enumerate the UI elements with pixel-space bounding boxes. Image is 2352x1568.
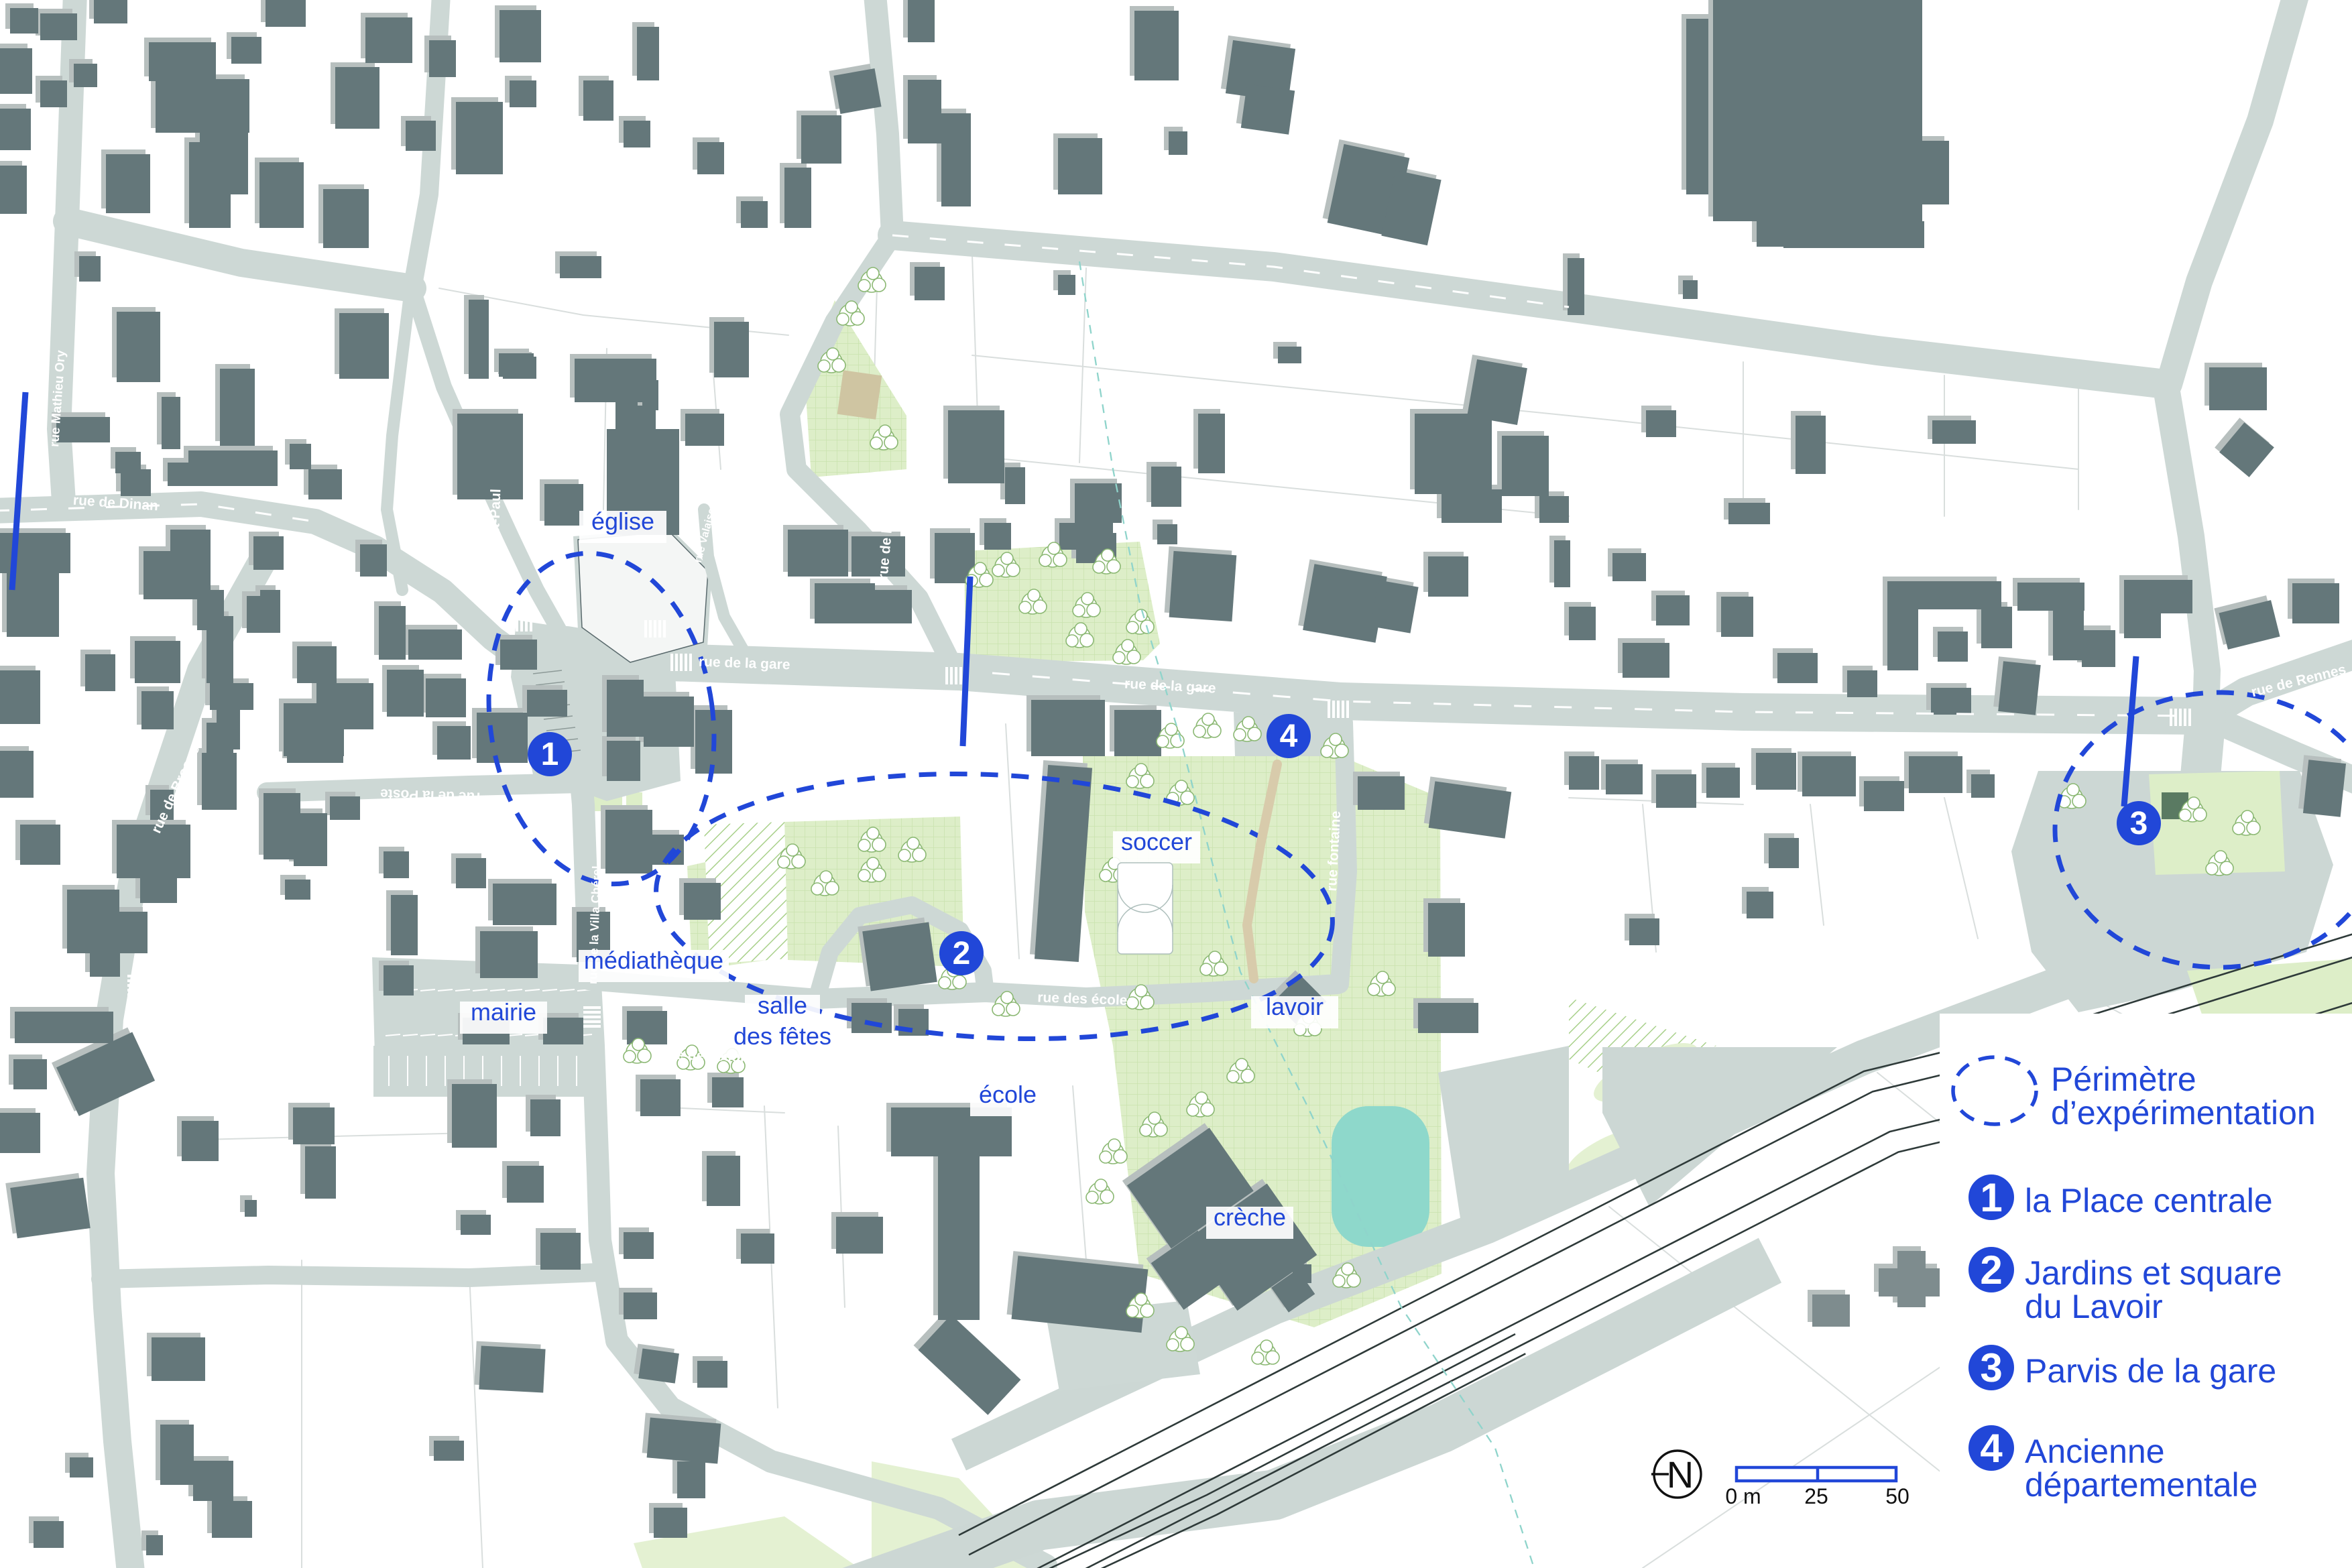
svg-text:départementale: départementale [2025, 1466, 2257, 1504]
svg-text:rue de la gare: rue de la gare [699, 654, 790, 673]
svg-text:3: 3 [2130, 806, 2148, 841]
svg-text:4: 4 [1280, 719, 1298, 754]
svg-text:église: église [591, 507, 654, 535]
svg-text:Jardins et square: Jardins et square [2025, 1254, 2282, 1292]
svg-text:1: 1 [541, 737, 559, 772]
svg-text:la Place centrale: la Place centrale [2025, 1182, 2273, 1219]
svg-text:crèche: crèche [1214, 1203, 1286, 1231]
svg-text:Parvis de la gare: Parvis de la gare [2025, 1352, 2276, 1390]
svg-text:50: 50 [1885, 1484, 1909, 1508]
svg-text:0 m: 0 m [1725, 1484, 1761, 1508]
svg-text:soccer: soccer [1121, 828, 1192, 855]
svg-text:école: école [979, 1081, 1037, 1108]
svg-text:25: 25 [1804, 1484, 1828, 1508]
svg-text:2: 2 [953, 936, 971, 971]
svg-text:mairie: mairie [471, 998, 536, 1026]
svg-text:salle: salle [758, 991, 807, 1019]
svg-text:lavoir: lavoir [1266, 993, 1324, 1020]
svg-text:médiathèque: médiathèque [584, 947, 723, 974]
svg-text:2: 2 [1980, 1248, 2002, 1292]
svg-text:des fêtes: des fêtes [733, 1022, 831, 1050]
svg-text:Ancienne: Ancienne [2025, 1433, 2165, 1470]
svg-text:4: 4 [1980, 1426, 2003, 1471]
svg-text:d’expérimentation: d’expérimentation [2051, 1094, 2316, 1132]
svg-text:3: 3 [1980, 1345, 2002, 1390]
svg-text:Périmètre: Périmètre [2051, 1061, 2196, 1098]
svg-text:N: N [1667, 1453, 1694, 1496]
svg-text:1: 1 [1980, 1175, 2002, 1220]
svg-text:du Lavoir: du Lavoir [2025, 1288, 2163, 1325]
svg-text:rue Saint-Paul: rue Saint-Paul [485, 489, 504, 584]
